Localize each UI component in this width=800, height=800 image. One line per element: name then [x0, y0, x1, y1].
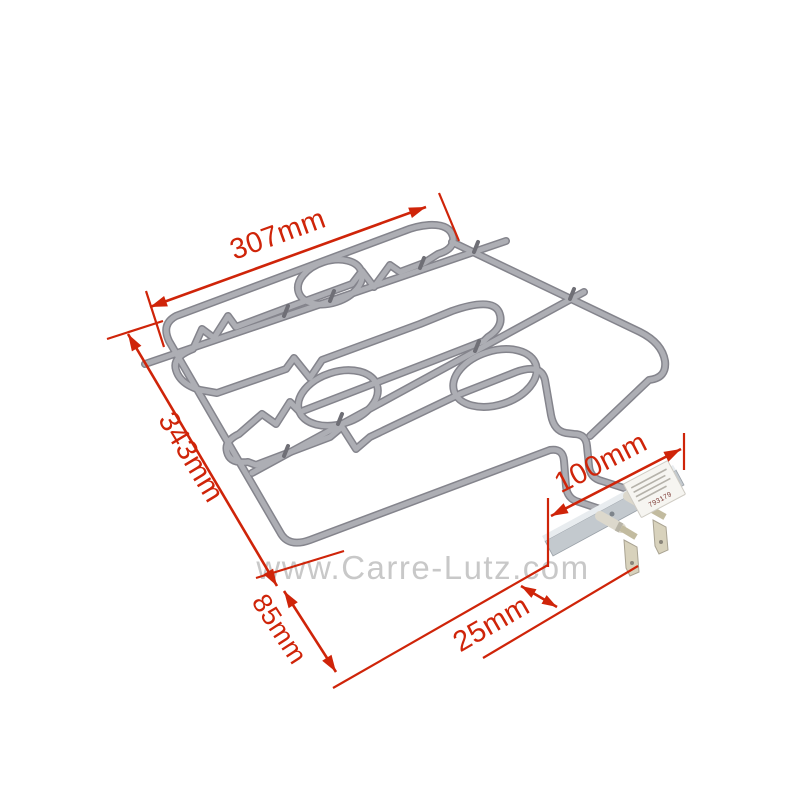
watermark-text: www.Carre-Lutz.com — [255, 549, 589, 586]
arrowhead — [322, 655, 336, 672]
arrowhead — [408, 207, 426, 218]
dimension-label-top-width: 307mm — [226, 203, 330, 267]
arrowhead — [521, 586, 537, 598]
arrowhead — [551, 503, 569, 516]
arrowhead — [150, 296, 168, 307]
arrowhead — [284, 591, 298, 608]
bracket-hole — [610, 512, 615, 517]
arrowhead — [663, 449, 681, 462]
dimension-label-terminal-offset: 25mm — [448, 590, 536, 659]
dimension-label-left-drop: 85mm — [246, 589, 313, 670]
product-photo: 793179 www.Carre-Lutz.com — [0, 0, 800, 800]
heating-element-illustration: 793179 — [145, 225, 686, 576]
arrowhead — [542, 595, 558, 607]
arrowhead — [128, 334, 141, 351]
product-photo-canvas: 793179 www.Carre-Lutz.com — [0, 0, 800, 800]
